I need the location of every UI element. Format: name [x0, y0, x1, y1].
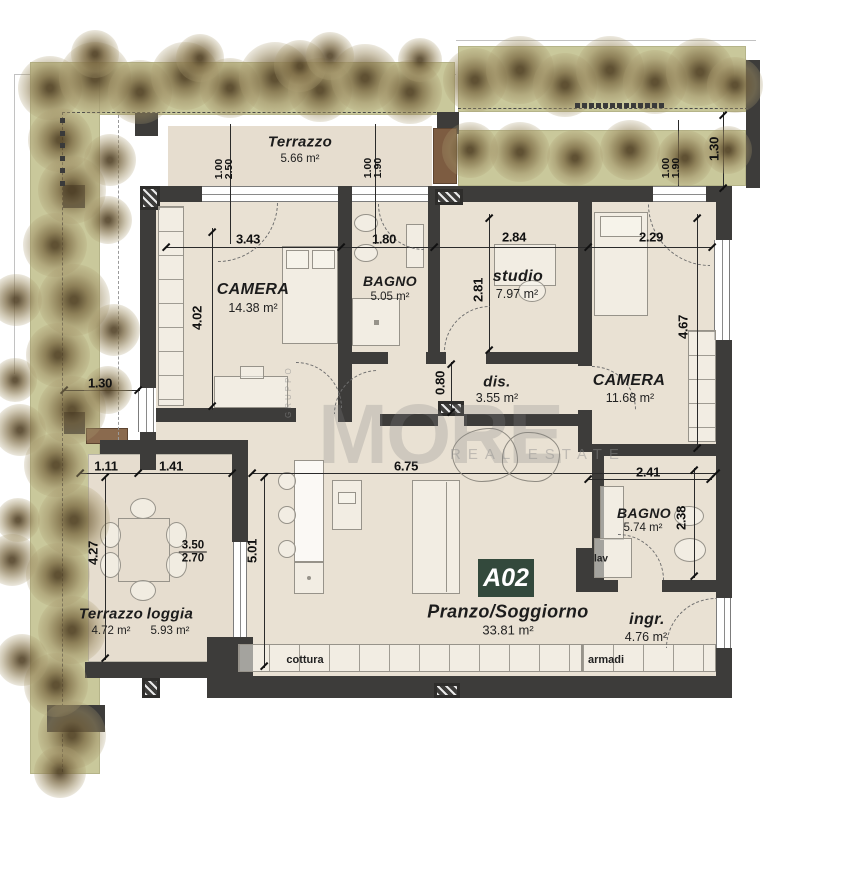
fence-post: [638, 103, 643, 108]
dim-label: 2.41: [636, 465, 660, 480]
boundary-dashed: [62, 112, 63, 772]
window-dim: 1.00 1.90: [661, 158, 681, 178]
room-label: CAMERA: [593, 372, 666, 390]
pillow: [286, 250, 309, 269]
room-label: loggia: [147, 606, 194, 623]
floor-plan: Terrazzo 5.66 m² CAMERA 14.38 m² BAGNO 5…: [0, 0, 850, 881]
unit-badge: A02: [478, 559, 534, 597]
fence-post: [659, 103, 664, 108]
room-label: BAGNO: [363, 273, 417, 289]
dim-label: 1.41: [159, 459, 183, 474]
pillar: [135, 113, 158, 136]
room-area: 5.05 m²: [371, 291, 410, 303]
fence-post: [596, 103, 601, 108]
pillar: [63, 185, 85, 208]
fence-post: [575, 103, 580, 108]
fence-post: [624, 103, 629, 108]
room-area: 11.68 m²: [606, 391, 654, 405]
pillar: [64, 412, 85, 434]
fence-post: [631, 103, 636, 108]
wall-segment: [464, 414, 592, 426]
property-line: [14, 74, 15, 374]
dim-line: [723, 112, 724, 190]
wardrobe: [688, 330, 716, 442]
fence-post: [60, 156, 65, 161]
window: [352, 186, 428, 202]
fence-post: [603, 103, 608, 108]
room-label: ingr.: [629, 611, 665, 629]
dim-label: 4.02: [190, 306, 205, 330]
sink-tap: [307, 576, 311, 580]
lav-label: lav: [594, 554, 608, 565]
wall-segment: [662, 580, 732, 592]
wall-segment: [338, 202, 352, 352]
pillar: [47, 705, 105, 732]
boundary-dashed: [62, 112, 456, 113]
cottura-label: cottura: [286, 654, 323, 666]
wall-segment: [592, 444, 732, 456]
window: [653, 186, 706, 202]
armadi-label: armadi: [588, 654, 624, 666]
room-area: 5.74 m²: [624, 522, 663, 534]
dim-line: [375, 124, 376, 244]
rug-blob: [502, 432, 560, 482]
stool: [278, 472, 296, 490]
wall-segment: [426, 352, 446, 364]
fence-post: [617, 103, 622, 108]
column: [142, 678, 160, 698]
dim-label: 3.43: [236, 232, 260, 247]
dim-line: [264, 477, 265, 668]
fence-post: [589, 103, 594, 108]
fence-post: [60, 131, 65, 136]
wall-segment: [338, 186, 352, 202]
column: [140, 186, 160, 210]
dim-label: 3.50: [179, 540, 207, 553]
dim-label: 2.81: [471, 278, 486, 302]
room-area: 4.72 m²: [92, 625, 131, 637]
room-area: 14.38 m²: [228, 301, 277, 315]
fence-post: [610, 103, 615, 108]
fence-post: [652, 103, 657, 108]
room-label: Pranzo/Soggiorno: [427, 602, 588, 623]
room-label: studio: [493, 268, 543, 286]
dim-label: 1.30: [88, 376, 112, 391]
room-area: 7.97 m²: [496, 287, 538, 301]
room-area: 5.93 m²: [151, 625, 190, 637]
toilet: [674, 538, 706, 562]
column: [434, 683, 460, 698]
kitchen-island: [294, 460, 324, 562]
wall-segment: [156, 408, 296, 422]
sofa: [412, 480, 460, 594]
dim-label: 2.50: [224, 159, 234, 179]
wall-segment: [576, 548, 592, 592]
fence-post: [582, 103, 587, 108]
fence-post: [60, 118, 65, 123]
garden-end-wall: [746, 60, 760, 188]
wall-segment: [578, 186, 592, 366]
wall-segment: [232, 676, 732, 698]
chair: [100, 552, 121, 578]
room-area: 3.55 m²: [476, 391, 518, 405]
garden-strip-topright-2: [458, 130, 746, 186]
wall-segment: [380, 414, 438, 426]
room-label: Terrazzo: [79, 606, 143, 623]
window: [138, 388, 154, 432]
dim-label: 1.80: [372, 232, 396, 247]
cooktop: [338, 492, 356, 504]
room-area: 33.81 m²: [482, 623, 533, 638]
fence-post: [60, 168, 65, 173]
dim-line: [212, 228, 213, 410]
chair: [130, 580, 156, 601]
chair: [130, 498, 156, 519]
dining-table: [118, 518, 170, 582]
window-dim: 1.00 1.90: [363, 158, 383, 178]
stool: [278, 540, 296, 558]
fence-post: [60, 181, 65, 186]
dim-line: [451, 362, 452, 414]
boundary-dashed: [458, 108, 748, 109]
wall-segment: [428, 202, 440, 352]
dim-label: 2.84: [502, 230, 526, 245]
wall-segment: [100, 440, 233, 454]
unit-badge-text: A02: [483, 564, 529, 593]
shower-drain: [374, 320, 379, 325]
pillow: [600, 216, 642, 237]
stool: [278, 506, 296, 524]
entrance-door: [716, 598, 731, 648]
room-label: BAGNO: [617, 505, 671, 521]
chair: [100, 522, 121, 548]
garden-strip-topright-1: [458, 46, 746, 112]
pillow: [312, 250, 335, 269]
wall-segment: [716, 186, 732, 240]
wall-segment: [232, 440, 248, 542]
wardrobe: [158, 206, 184, 406]
window-dim: 1.00 2.50: [214, 159, 234, 179]
dim-label: 2.38: [674, 506, 689, 530]
dim-label: 1.30: [707, 137, 722, 161]
column: [435, 189, 463, 205]
wall-segment: [486, 352, 592, 364]
wall-segment: [140, 186, 156, 388]
room-area: 5.66 m²: [281, 153, 320, 165]
room-label: CAMERA: [217, 281, 290, 299]
dim-label: 1.11: [94, 459, 117, 474]
dim-label: 0.80: [433, 371, 448, 395]
room-label: dis.: [483, 374, 510, 391]
dim-label: 4.67: [676, 315, 691, 339]
property-line: [456, 40, 756, 41]
dim-label: 1.90: [671, 158, 681, 178]
dim-label: 6.75: [394, 459, 418, 474]
chair: [240, 366, 264, 379]
sofa-back-line: [446, 482, 447, 592]
desk: [214, 376, 288, 408]
wood-screen: [433, 128, 457, 184]
fence-post: [645, 103, 650, 108]
window: [202, 186, 338, 202]
dim-label: 2.29: [639, 230, 663, 245]
room-area: 4.76 m²: [625, 630, 667, 644]
window: [714, 240, 730, 340]
dim-line: [694, 468, 695, 578]
path-dashed: [118, 115, 119, 445]
room-label: Terrazzo: [268, 134, 332, 151]
dim-label: 1.90: [373, 158, 383, 178]
wall-segment: [592, 580, 618, 592]
dim-label: 5.01: [245, 539, 260, 563]
dim-label: 2.70: [179, 553, 207, 565]
dim-label: 4.27: [86, 541, 101, 565]
dim-label-fraction: 3.50 2.70: [179, 540, 207, 565]
fence-post: [60, 143, 65, 148]
kitchen-unit: [332, 480, 362, 530]
